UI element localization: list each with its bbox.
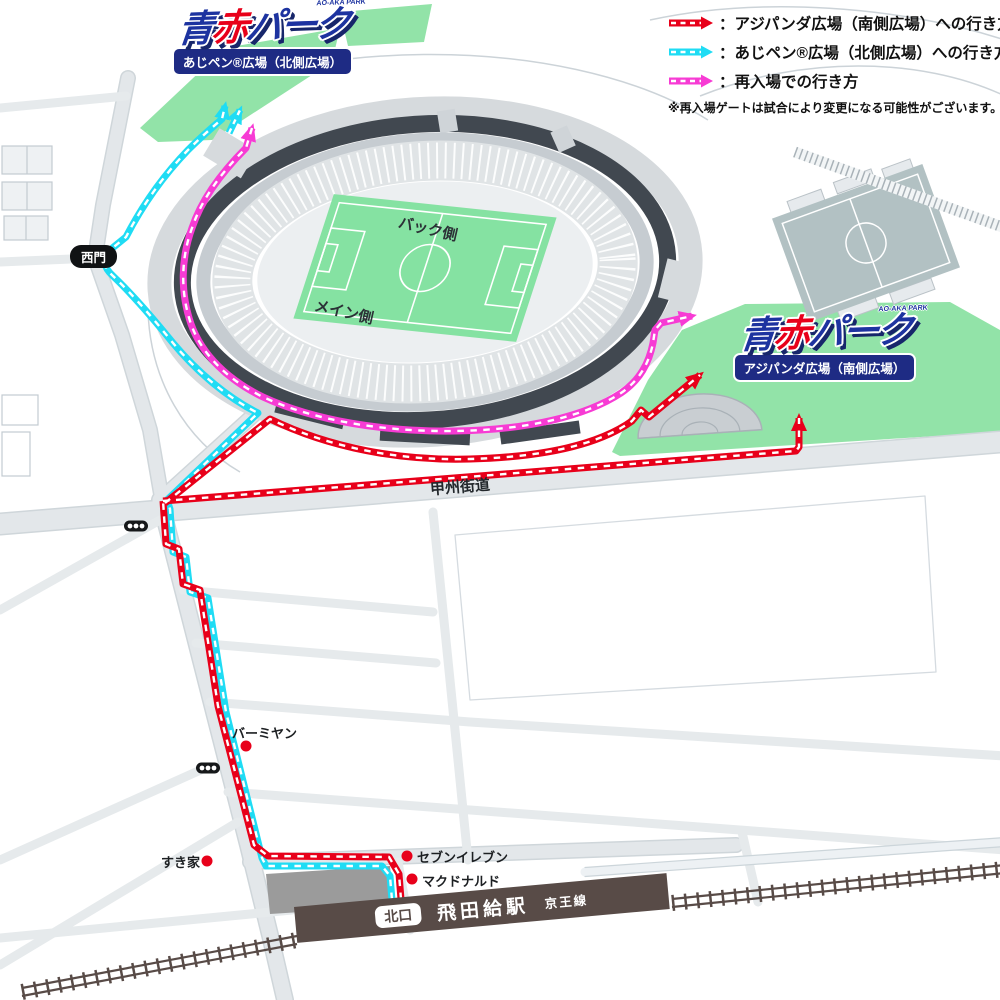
legend-row-reentry: ：再入場での行き方 (668, 70, 998, 92)
north-plaza-label: あじペン®広場（北側広場） (172, 47, 353, 76)
landmark-dot-bamiyan (241, 741, 252, 752)
logo-ao: 青 (737, 314, 775, 356)
legend-label-reentry: ：再入場での行き方 (719, 70, 859, 92)
legend-label-north: ：あじペン®広場（北側広場）への行き方 (719, 41, 1000, 63)
aoaka-park-logo: 青赤パーク AO-AKA PARK (175, 5, 350, 48)
logo-ao: 青 (175, 8, 213, 50)
north-plaza-block: 青赤パーク AO-AKA PARK あじペン®広場（北側広場） (160, 8, 365, 76)
logo-park: パーク (805, 309, 912, 354)
landmark-dot-mcdonalds (407, 874, 418, 885)
logo-badge: AO-AKA PARK (316, 0, 353, 7)
station-name: 飛田給駅 (436, 890, 530, 925)
red-dashed-arrow-icon (668, 16, 714, 30)
sports-courts (2, 146, 52, 476)
legend: ：アジパンダ広場（南側広場）への行き方 ：あじペン®広場（北側広場）への行き方 … (668, 12, 998, 116)
cyan-dashed-arrow-icon (668, 45, 714, 59)
landmark-dot-sukiya (202, 856, 213, 867)
landmark-label-seven-eleven: セブンイレブン (417, 847, 508, 866)
access-map: ：アジパンダ広場（南側広場）への行き方 ：あじペン®広場（北側広場）への行き方 … (0, 0, 1000, 1000)
logo-aka: 赤 (771, 313, 809, 355)
magenta-dashed-arrow-icon (668, 74, 714, 88)
landmark-label-sukiya: すき家 (150, 852, 200, 871)
south-plaza-label: アジパンダ広場（南側広場） (733, 353, 917, 382)
south-plaza-block: 青赤パーク AO-AKA PARK アジパンダ広場（南側広場） (722, 314, 927, 382)
traffic-light-icon (124, 521, 148, 532)
landmark-label-bamiyan: バーミヤン (232, 723, 297, 742)
logo-park: パーク (243, 3, 350, 48)
legend-row-south: ：アジパンダ広場（南側広場）への行き方 (668, 12, 998, 34)
logo-badge: AO-AKA PARK (878, 305, 915, 313)
aoaka-park-logo: 青赤パーク AO-AKA PARK (737, 311, 912, 354)
railway-left (22, 936, 297, 996)
landmark-label-mcdonalds: マクドナルド (422, 871, 500, 890)
west-gate-label: 西門 (70, 245, 117, 268)
legend-row-north: ：あじペン®広場（北側広場）への行き方 (668, 41, 998, 63)
station-line: 京王線 (544, 889, 589, 912)
railway-right (672, 865, 1000, 907)
landmark-dot-seven-eleven (402, 851, 413, 862)
station-north-exit-badge: 北口 (374, 903, 422, 929)
traffic-light-icon (196, 763, 220, 774)
logo-aka: 赤 (209, 7, 247, 49)
city-block-outline (455, 496, 936, 700)
legend-note: ※再入場ゲートは試合により変更になる可能性がございます。 (668, 99, 998, 116)
legend-label-south: ：アジパンダ広場（南側広場）への行き方 (719, 12, 1000, 34)
